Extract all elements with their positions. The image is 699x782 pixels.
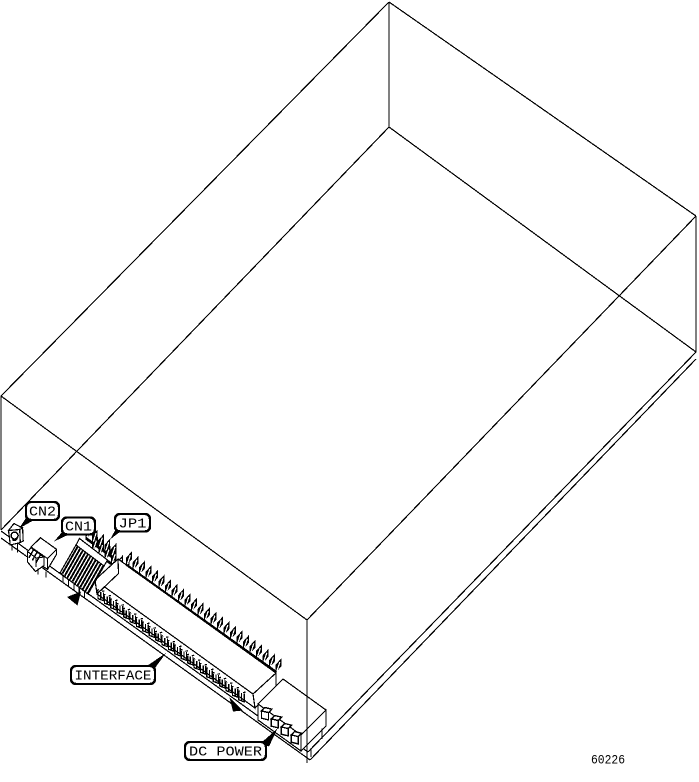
svg-text:INTERFACE: INTERFACE xyxy=(75,670,152,685)
svg-text:CN2: CN2 xyxy=(29,506,56,521)
svg-text:60226: 60226 xyxy=(591,753,625,768)
svg-text:JP1: JP1 xyxy=(119,517,147,532)
svg-text:CN1: CN1 xyxy=(65,521,92,536)
svg-text:DC POWER: DC POWER xyxy=(189,746,262,761)
